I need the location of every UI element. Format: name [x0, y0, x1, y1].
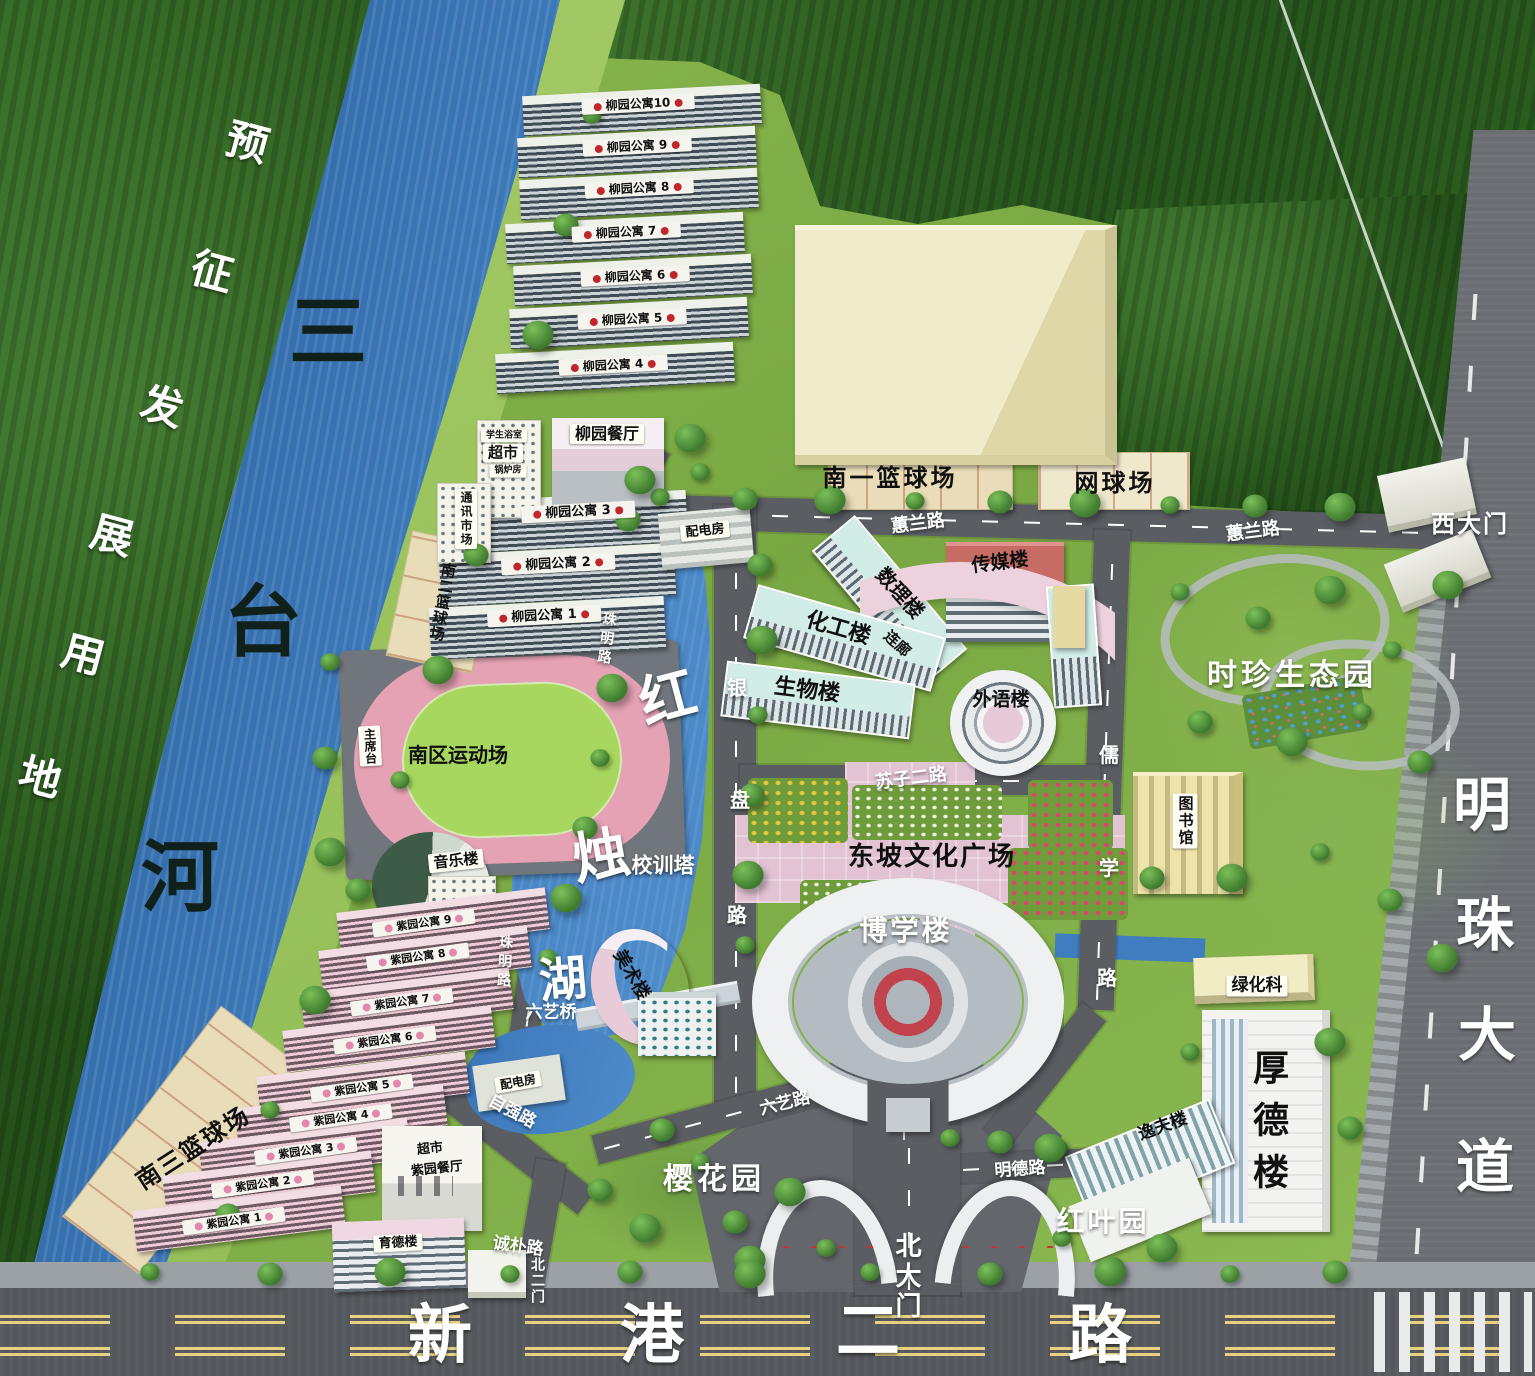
label-reserved-land-char-3: 发: [136, 381, 187, 432]
label-ziyuan-apt-3: 紫园公寓 3: [254, 1136, 359, 1165]
label-river-char-2: 台: [224, 584, 302, 662]
label-lake-char-2: 烛: [569, 825, 634, 890]
label-yinpan-road-char-1: 银: [727, 678, 747, 698]
label-greening-office: 绿化科: [1227, 976, 1288, 997]
label-mingzhu-ave-char-2: 珠: [1456, 896, 1514, 954]
label-student-bath: 学生浴室: [481, 430, 527, 443]
label-mingzhu-ave-char-3: 大: [1458, 1006, 1516, 1064]
label-library: 图书馆: [1173, 794, 1198, 849]
label-music-building: 音乐楼: [428, 849, 485, 874]
label-south1-basketball: 南一篮球场: [823, 466, 958, 490]
label-houde-building: 厚德楼: [1249, 1049, 1285, 1205]
label-lake-char-3: 湖: [537, 954, 589, 1006]
label-north-gate-2: 北二门: [530, 1257, 544, 1305]
label-lianlang: 连廊: [881, 628, 913, 659]
label-power-room-south: 配电房: [494, 1070, 542, 1094]
label-reserved-land-char-5: 用: [57, 629, 108, 680]
label-ruxue-road-char-3: 路: [1097, 968, 1117, 988]
label-liuyuan-apt-4: 柳园公寓 4: [558, 354, 667, 376]
label-yinpan-road-char-3: 路: [727, 905, 747, 925]
label-yifu-building: 逸夫楼: [1136, 1110, 1190, 1143]
label-power-room-north: 配电房: [680, 520, 731, 542]
label-huilan-road-2: 蕙兰路: [1225, 520, 1281, 544]
label-west-gate: 西大门: [1431, 512, 1509, 536]
labels-layer: 柳园公寓10柳园公寓 9柳园公寓 8柳园公寓 7柳园公寓 6柳园公寓 5柳园公寓…: [0, 0, 1535, 1376]
label-rostrum: 主席台: [358, 725, 382, 766]
label-liuyuan-apt-7: 柳园公寓 7: [571, 221, 680, 243]
label-huilan-road-1: 蕙兰路: [890, 512, 946, 536]
label-xingang-road-char-4: 路: [1068, 1304, 1132, 1368]
label-ziyuan-apt-8: 紫园公寓 8: [366, 942, 471, 971]
label-chuanmei-building: 传媒楼: [971, 550, 1030, 576]
label-ruxue-road-char-2: 学: [1099, 858, 1119, 878]
label-ziyuan-apt-1: 紫园公寓 1: [182, 1206, 287, 1235]
label-ziyuan-apt-9: 紫园公寓 9: [372, 908, 477, 937]
label-ziyuan-apt-2: 紫园公寓 2: [211, 1169, 316, 1198]
label-boiler-room: 锅炉房: [489, 465, 526, 478]
label-supermarket-south: 超市: [416, 1141, 443, 1157]
label-reserved-land-char-4: 展: [86, 510, 137, 561]
label-ziyuan-canteen: 紫园餐厅: [410, 1160, 463, 1178]
label-tennis-court: 网球场: [1075, 471, 1156, 495]
label-ziqiang-road: 自强路: [485, 1093, 538, 1132]
label-liuyuan-apt-8: 柳园公寓 8: [584, 177, 693, 199]
label-hongye-garden: 红叶园: [1056, 1208, 1149, 1236]
label-dongpo-plaza: 东坡文化广场: [848, 844, 1016, 870]
label-liuyuan-apt-1: 柳园公寓 1: [487, 605, 601, 628]
label-shizhen-eco-garden: 时珍生态园: [1207, 661, 1377, 691]
label-river-char-3: 河: [141, 839, 219, 917]
label-ruxue-road-char-1: 儒: [1099, 745, 1119, 765]
label-liuyuan-apt-9: 柳园公寓 9: [582, 135, 691, 157]
label-meishu-building: 美术楼: [610, 947, 653, 1003]
label-south-sports-field: 南区运动场: [408, 745, 508, 765]
label-chengpu-road: 诚朴路: [492, 1235, 545, 1259]
label-liuyuan-apt-5: 柳园公寓 5: [577, 308, 686, 330]
label-reserved-land-char-1: 预: [221, 117, 272, 168]
label-ziyuan-apt-6: 紫园公寓 6: [333, 1025, 438, 1054]
label-liuyi-bridge: 六艺桥: [526, 1005, 577, 1022]
label-reserved-land-char-6: 地: [14, 752, 65, 803]
label-mingde-road: 明德路: [994, 1160, 1046, 1181]
label-comm-market: 通讯市场: [455, 489, 477, 549]
label-yude-building: 育德楼: [373, 1233, 423, 1253]
label-liuyuan-apt-3: 柳园公寓 3: [521, 501, 635, 524]
label-zhuming-road-2: 珠明路: [496, 934, 513, 992]
label-waiyu-building: 外语楼: [972, 691, 1029, 710]
label-south2-basketball: 南二篮球场: [428, 561, 457, 642]
label-shuli-building: 数理楼: [872, 564, 927, 622]
label-mingzhu-ave-char-4: 道: [1456, 1138, 1514, 1196]
label-supermarket-north: 超市: [483, 444, 523, 463]
label-xingang-road-char-3: 二: [836, 1300, 900, 1364]
label-reserved-land-char-2: 征: [186, 246, 237, 297]
label-liuyi-road: 六艺路: [758, 1090, 812, 1119]
label-liuyuan-apt-10: 柳园公寓10: [581, 93, 694, 115]
campus-map: 柳园公寓10柳园公寓 9柳园公寓 8柳园公寓 7柳园公寓 6柳园公寓 5柳园公寓…: [0, 0, 1535, 1376]
label-ziyuan-apt-5: 紫园公寓 5: [310, 1073, 415, 1102]
label-boxue-building: 博学楼: [859, 917, 952, 945]
label-mingzhu-ave-char-1: 明: [1453, 776, 1511, 834]
label-liuyuan-canteen: 柳园餐厅: [570, 424, 644, 444]
label-liuyuan-apt-6: 柳园公寓 6: [580, 265, 689, 287]
label-lake-char-1: 红: [634, 665, 703, 734]
label-liuyuan-apt-2: 柳园公寓 2: [501, 553, 615, 576]
label-xiaoxun-tower: 校训塔: [632, 856, 695, 877]
label-river-char-1: 三: [289, 294, 367, 372]
label-sakura-garden: 樱花园: [663, 1165, 765, 1195]
label-xingang-road-char-2: 港: [620, 1304, 684, 1368]
label-huagong-building: 化工楼: [803, 609, 873, 648]
label-ziyuan-apt-4: 紫园公寓 4: [289, 1103, 394, 1132]
label-yinpan-road-char-2: 盘: [730, 790, 750, 810]
label-shengwu-building: 生物楼: [773, 676, 841, 706]
label-xingang-road-char-1: 新: [408, 1304, 472, 1368]
label-ziyuan-apt-7: 紫园公寓 7: [350, 987, 455, 1016]
label-suzi-2-road: 苏子二路: [874, 766, 948, 793]
